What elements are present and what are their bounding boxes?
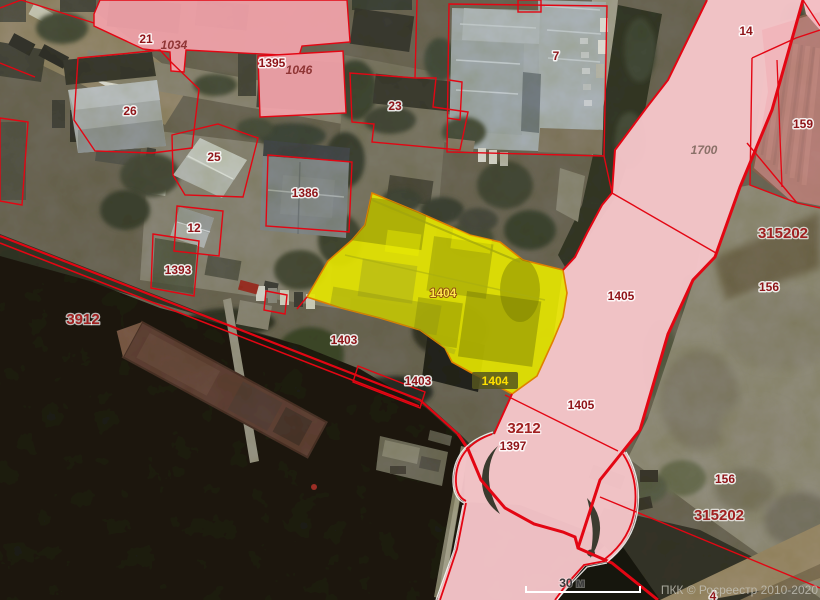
svg-text:1034: 1034 [161,38,188,52]
svg-text:1386: 1386 [292,186,319,200]
svg-text:1404: 1404 [482,374,509,388]
svg-text:156: 156 [759,280,779,294]
svg-text:1046: 1046 [286,63,313,77]
svg-text:1397: 1397 [500,439,527,453]
svg-text:1404: 1404 [430,286,457,300]
svg-text:21: 21 [139,32,153,46]
svg-text:315202: 315202 [694,507,744,524]
svg-text:3212: 3212 [507,420,540,437]
svg-text:3912: 3912 [66,311,99,328]
svg-text:12: 12 [187,221,201,235]
svg-text:1405: 1405 [608,289,635,303]
svg-text:14: 14 [739,24,753,38]
svg-text:1403: 1403 [331,333,358,347]
svg-text:25: 25 [207,150,221,164]
svg-text:7: 7 [553,49,560,63]
svg-text:30 м: 30 м [559,576,585,590]
svg-text:1405: 1405 [568,398,595,412]
svg-text:ПКК © Росреестр 2010-2020: ПКК © Росреестр 2010-2020 [661,583,819,597]
svg-text:1393: 1393 [165,263,192,277]
svg-text:1403: 1403 [405,374,432,388]
svg-text:26: 26 [123,104,137,118]
svg-text:156: 156 [715,472,735,486]
svg-text:315202: 315202 [758,225,808,242]
svg-text:1395: 1395 [259,56,286,70]
svg-text:159: 159 [793,117,813,131]
svg-text:1700: 1700 [691,143,718,157]
svg-text:23: 23 [388,99,402,113]
